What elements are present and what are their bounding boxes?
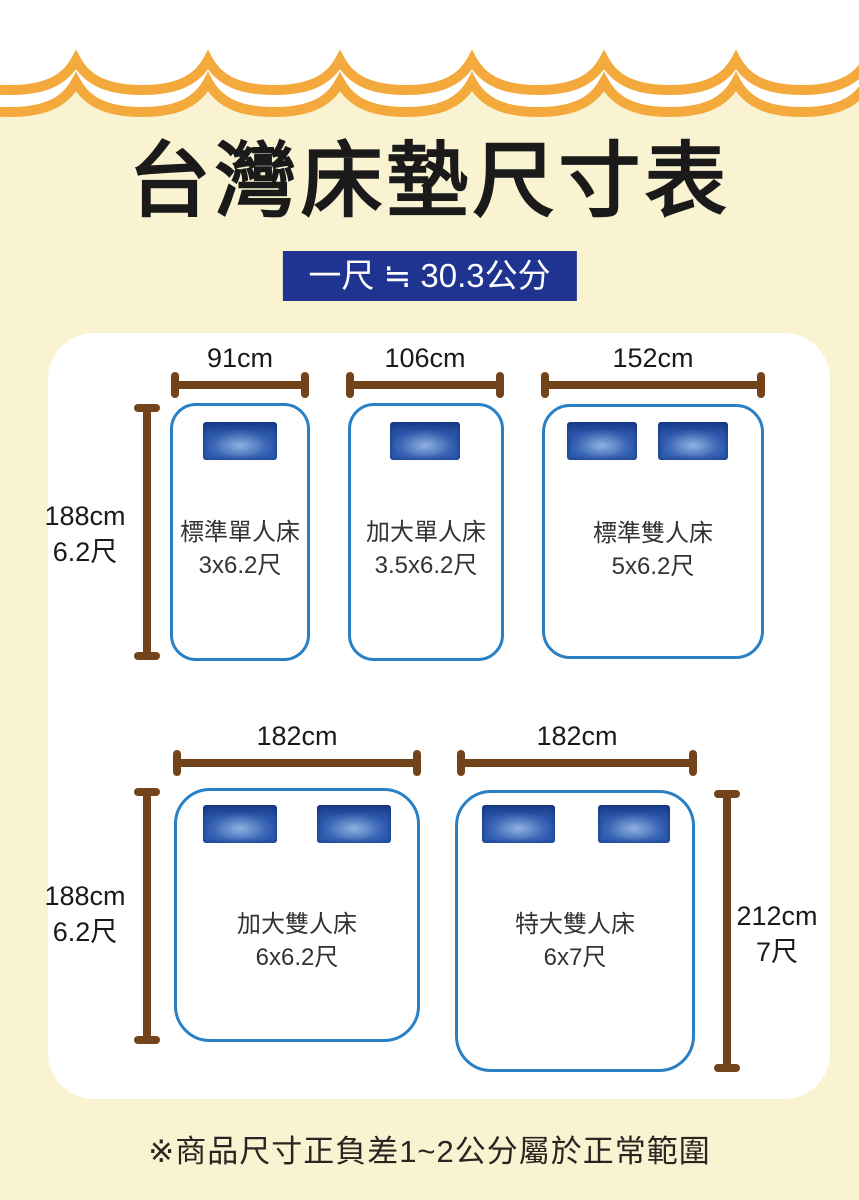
- ruler-bar: [723, 793, 731, 1069]
- width-ruler: [171, 372, 309, 398]
- pillow-icon: [390, 422, 460, 460]
- ruler-cap: [496, 372, 504, 398]
- height-ruler: [134, 404, 160, 660]
- wave-decoration: [0, 0, 859, 130]
- ruler-cap: [134, 1036, 160, 1044]
- bed-size: 3.5x6.2尺: [351, 549, 501, 582]
- bed-size: 3x6.2尺: [173, 549, 307, 582]
- ruler-bar: [143, 407, 151, 657]
- bed-size: 6x6.2尺: [177, 941, 417, 974]
- bed-card-single-large: 加大單人床 3.5x6.2尺: [348, 403, 504, 661]
- pillow-icon: [203, 805, 277, 843]
- height-ruler: [714, 790, 740, 1072]
- bed-label: 標準單人床 3x6.2尺: [173, 516, 307, 582]
- width-ruler: [457, 750, 697, 776]
- height-label-cm: 188cm: [30, 878, 140, 914]
- ruler-cap: [689, 750, 697, 776]
- bed-name: 特大雙人床: [458, 908, 692, 941]
- ruler-bar: [143, 791, 151, 1041]
- width-label: 152cm: [541, 343, 765, 373]
- bed-label: 標準雙人床 5x6.2尺: [545, 517, 761, 583]
- height-label: 188cm 6.2尺: [30, 878, 140, 950]
- ruler-cap: [714, 1064, 740, 1072]
- pillow-icon: [567, 422, 637, 460]
- bed-name: 標準雙人床: [545, 517, 761, 550]
- bed-name: 加大單人床: [351, 516, 501, 549]
- ruler-cap: [413, 750, 421, 776]
- bed-label: 加大單人床 3.5x6.2尺: [351, 516, 501, 582]
- width-label: 91cm: [171, 343, 309, 373]
- mattress-size-infographic: 台灣床墊尺寸表 一尺 ≒ 30.3公分 91cm 106cm 152cm 188…: [0, 0, 859, 1200]
- bed-name: 標準單人床: [173, 516, 307, 549]
- bed-card-single-standard: 標準單人床 3x6.2尺: [170, 403, 310, 661]
- wave-svg: [0, 0, 859, 130]
- pillow-icon: [317, 805, 391, 843]
- ruler-cap: [301, 372, 309, 398]
- pillow-icon: [203, 422, 277, 460]
- height-label: 188cm 6.2尺: [30, 498, 140, 570]
- height-ruler: [134, 788, 160, 1044]
- width-label: 182cm: [173, 721, 421, 751]
- bed-size: 5x6.2尺: [545, 550, 761, 583]
- ruler-bar: [174, 381, 306, 389]
- footnote: ※商品尺寸正負差1~2公分屬於正常範圍: [0, 1126, 859, 1171]
- ruler-cap: [757, 372, 765, 398]
- height-label-cm: 188cm: [30, 498, 140, 534]
- width-ruler: [173, 750, 421, 776]
- height-label-chi: 6.2尺: [30, 914, 140, 950]
- bed-label: 特大雙人床 6x7尺: [458, 908, 692, 974]
- pillow-icon: [598, 805, 670, 843]
- conversion-badge: 一尺 ≒ 30.3公分: [282, 251, 576, 301]
- bed-card-double-extra: 特大雙人床 6x7尺: [455, 790, 695, 1072]
- width-label: 106cm: [346, 343, 504, 373]
- height-label-chi: 6.2尺: [30, 534, 140, 570]
- pillow-icon: [482, 805, 555, 843]
- bed-card-double-large: 加大雙人床 6x6.2尺: [174, 788, 420, 1042]
- ruler-cap: [134, 652, 160, 660]
- ruler-bar: [544, 381, 762, 389]
- ruler-bar: [176, 759, 418, 767]
- width-ruler: [346, 372, 504, 398]
- bed-card-double-standard: 標準雙人床 5x6.2尺: [542, 404, 764, 659]
- bed-label: 加大雙人床 6x6.2尺: [177, 908, 417, 974]
- width-ruler: [541, 372, 765, 398]
- width-label: 182cm: [457, 721, 697, 751]
- ruler-bar: [460, 759, 694, 767]
- page-title: 台灣床墊尺寸表: [0, 132, 859, 232]
- ruler-bar: [349, 381, 501, 389]
- pillow-icon: [658, 422, 728, 460]
- bed-name: 加大雙人床: [177, 908, 417, 941]
- bed-size: 6x7尺: [458, 941, 692, 974]
